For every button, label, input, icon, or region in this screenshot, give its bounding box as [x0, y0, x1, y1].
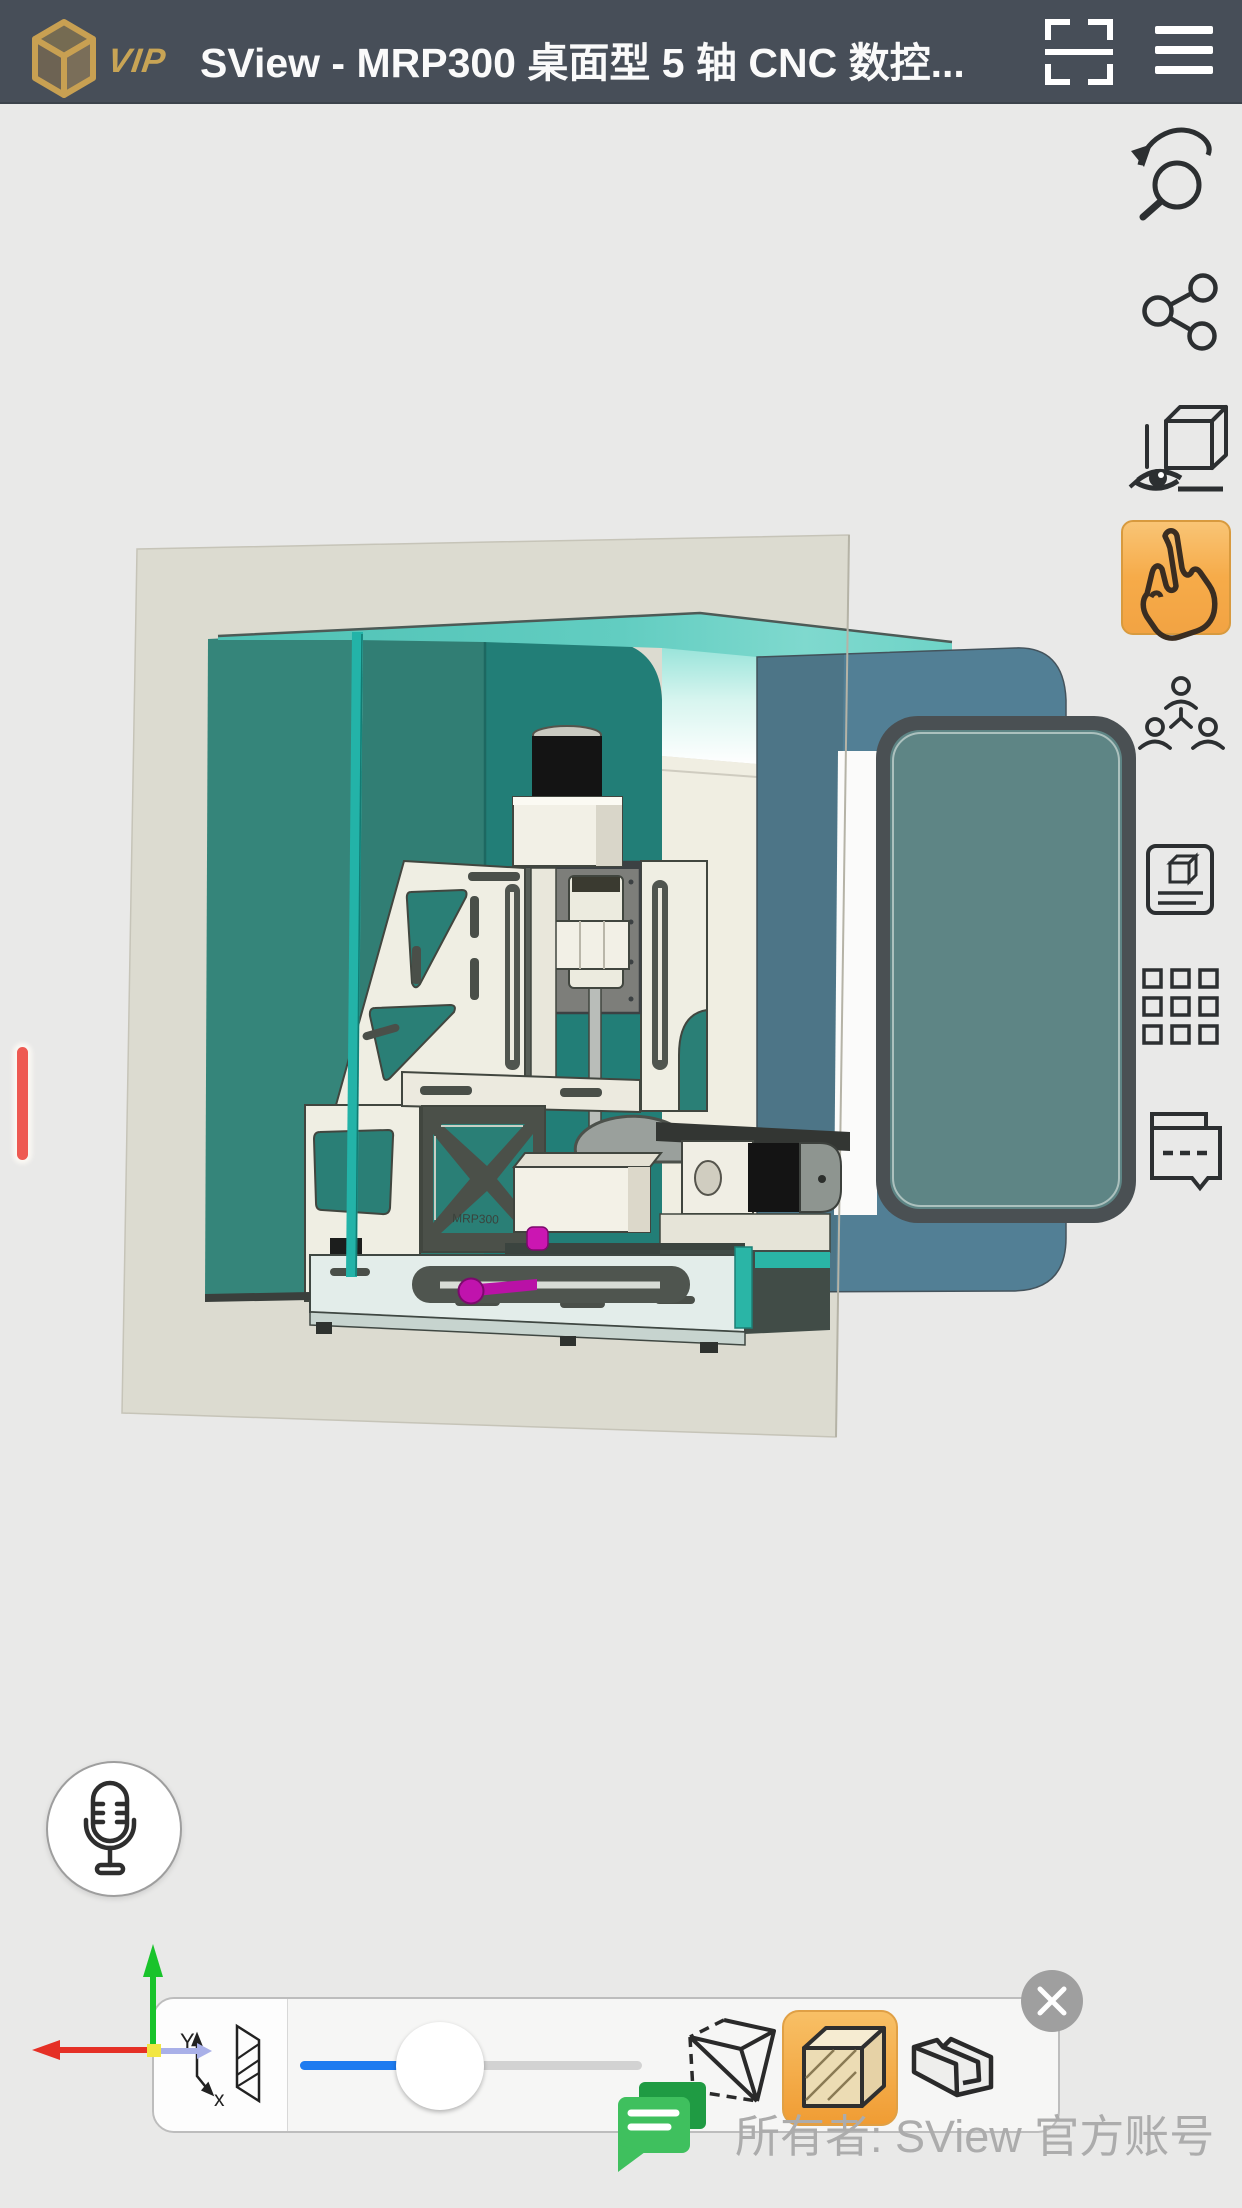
svg-text:MRP300: MRP300 [452, 1211, 499, 1227]
svg-text:x: x [214, 2088, 225, 2111]
